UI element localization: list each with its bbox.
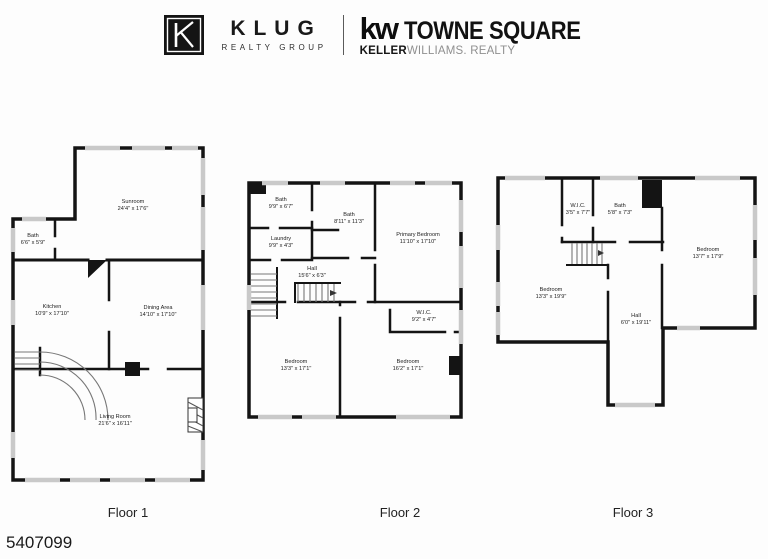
- room-dims: 9'9" x 4'3": [269, 243, 293, 249]
- room-dims: 6'0" x 19'11": [621, 320, 651, 326]
- floor1-chimney: [125, 362, 140, 376]
- room-label: Sunroom: [122, 199, 145, 205]
- room-dims: 9'9" x 6'7": [269, 204, 293, 210]
- room-label: Laundry: [271, 236, 291, 242]
- floor1-fireplace: [188, 398, 203, 432]
- room-dims: 13'3" x 19'9": [536, 294, 567, 300]
- room-dims: 21'6" x 16'11": [98, 421, 131, 427]
- room-label: Bedroom: [540, 287, 563, 293]
- listing-id: 5407099: [6, 533, 72, 553]
- room-label: Bath: [343, 212, 355, 218]
- kw-brand: kw TOWNE SQUARE KELLERWILLIAMS. REALTY: [360, 13, 605, 57]
- room-dims: 13'7" x 17'9": [693, 254, 724, 260]
- floor3-wall-block: [642, 180, 662, 208]
- room-label: Bath: [614, 203, 626, 209]
- brokerage-header: KLUG REALTY GROUP kw TOWNE SQUARE KELLER…: [0, 13, 768, 57]
- floor1-caption: Floor 1: [68, 505, 188, 520]
- room-label: W.I.C.: [416, 310, 432, 316]
- floor2-stairs: [251, 274, 334, 316]
- floor-plan-sheet: KLUG REALTY GROUP kw TOWNE SQUARE KELLER…: [0, 0, 768, 559]
- floor2-plan: Bath 9'9" x 6'7" Bath 8'11" x 11'3" Laun…: [240, 175, 475, 430]
- room-label: Living Room: [99, 414, 130, 420]
- floor2-caption: Floor 2: [340, 505, 460, 520]
- kw-keller: KELLER: [360, 45, 407, 57]
- room-label: Bath: [27, 233, 39, 239]
- floor3-labels: W.I.C. 3'5" x 7'7" Bath 5'8" x 7'3" Bedr…: [536, 203, 724, 326]
- room-dims: 24'4" x 17'6": [118, 206, 149, 212]
- room-dims: 6'6" x 5'9": [21, 240, 45, 246]
- kw-subtitle: KELLERWILLIAMS. REALTY: [360, 45, 516, 57]
- klug-tagline: REALTY GROUP: [221, 43, 326, 52]
- room-dims: 9'2" x 4'7": [412, 317, 436, 323]
- room-dims: 8'11" x 11'3": [334, 219, 364, 225]
- klug-text: KLUG REALTY GROUP: [217, 18, 326, 52]
- floor3-stair-arrow: [598, 250, 604, 256]
- room-label: Dining Area: [144, 305, 174, 311]
- room-dims: 10'9" x 17'10": [35, 311, 69, 317]
- floor3-caption: Floor 3: [573, 505, 693, 520]
- floor3-plan: W.I.C. 3'5" x 7'7" Bath 5'8" x 7'3" Bedr…: [490, 168, 765, 413]
- room-label: Kitchen: [43, 304, 62, 310]
- floor2-wall-block: [449, 356, 461, 375]
- room-dims: 3'5" x 7'7": [566, 210, 590, 216]
- room-label: Hall: [631, 313, 641, 319]
- klug-brand: KLUG REALTY GROUP: [163, 14, 326, 56]
- kw-title-row: kw TOWNE SQUARE: [360, 13, 605, 44]
- room-label: W.I.C.: [570, 203, 586, 209]
- room-dims: 5'8" x 7'3": [608, 210, 632, 216]
- room-dims: 14'10" x 17'10": [140, 312, 177, 318]
- room-label: Hall: [307, 266, 317, 272]
- klug-name: KLUG: [230, 18, 322, 39]
- floor1-plan: Sunroom 24'4" x 17'6" Bath 6'6" x 5'9" K…: [0, 140, 215, 490]
- header-divider: [343, 15, 344, 55]
- room-dims: 15'6" x 6'3": [298, 273, 326, 279]
- room-label: Bedroom: [285, 359, 308, 365]
- floor1-stairs: [15, 352, 108, 420]
- kw-mark: kw: [360, 13, 397, 44]
- room-dims: 13'3" x 17'1": [281, 366, 312, 372]
- room-label: Primary Bedroom: [396, 232, 440, 238]
- kw-office-name: TOWNE SQUARE: [404, 19, 580, 44]
- room-label: Bedroom: [697, 247, 720, 253]
- room-dims: 11'10" x 17'10": [400, 239, 437, 245]
- kw-williams-realty: WILLIAMS. REALTY: [407, 45, 515, 57]
- floor1-labels: Sunroom 24'4" x 17'6" Bath 6'6" x 5'9" K…: [21, 199, 177, 427]
- room-label: Bath: [275, 197, 287, 203]
- room-label: Bedroom: [397, 359, 420, 365]
- klug-logo-icon: [163, 14, 205, 56]
- room-dims: 16'2" x 17'1": [393, 366, 424, 372]
- floor3-stairs: [572, 243, 602, 264]
- floor1-door-swing: [88, 260, 107, 278]
